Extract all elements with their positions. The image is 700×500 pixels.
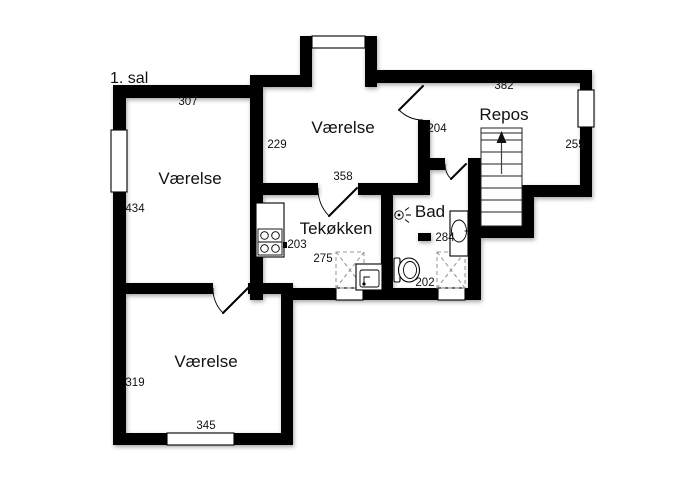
window [438,288,465,300]
dim-bath-bottom: 202 [415,277,434,289]
wall-segment [300,36,312,87]
door-kitchen [318,188,357,216]
room-left-label: Værelse [158,169,221,188]
wall-lamp-icon [395,208,411,223]
door-room-top [399,86,423,120]
dim-hall-door: 204 [427,123,447,135]
dim-kitchen-height: 203 [287,239,306,251]
wall-segment [365,70,592,83]
wall-segment [281,283,293,445]
staircase [481,128,522,226]
dim-room-top-height: 229 [267,139,286,151]
bath-label: Bad [415,202,445,221]
wall-segment [580,70,592,197]
wall-segment [468,158,481,300]
wall-segment [381,190,393,300]
dim-repos-width: 382 [494,80,513,92]
wall-segment [358,183,430,195]
wall-segment [113,283,213,294]
door-room-bottom [213,288,248,313]
room-bottom-label: Værelse [174,352,237,371]
door-bath [445,164,466,179]
room-top-label: Værelse [311,118,374,137]
dim-room-left-height: 434 [125,203,145,215]
kitchen-sink-icon [356,264,382,290]
wall-segment [250,75,306,87]
repos-label: Repos [479,105,528,124]
dim-room-left-width: 307 [178,96,197,108]
window [312,36,365,48]
window [578,90,594,127]
dim-bath-width: 284 [435,232,455,244]
dim-room-bottom-height: 319 [125,377,144,389]
dim-repos-height: 255 [565,139,584,151]
dim-kitchen-width: 275 [313,253,332,265]
window [167,433,234,445]
dim-room-top-door: 358 [333,171,352,183]
labels: 1. sal 307 Værelse 434 229 Værelse 358 2… [110,70,585,432]
floor-title: 1. sal [110,70,148,87]
window [111,130,127,192]
counter-notch [283,242,287,248]
wall-half-stub [418,233,431,241]
cooktop-icon [256,203,287,257]
kitchen-label: Tekøkken [300,219,373,238]
dim-room-bottom-width: 345 [196,420,215,432]
wall-segment [250,183,318,195]
floorplan-canvas: 1. sal 307 Værelse 434 229 Værelse 358 2… [0,0,700,500]
shower-dashed-icon [437,252,465,288]
